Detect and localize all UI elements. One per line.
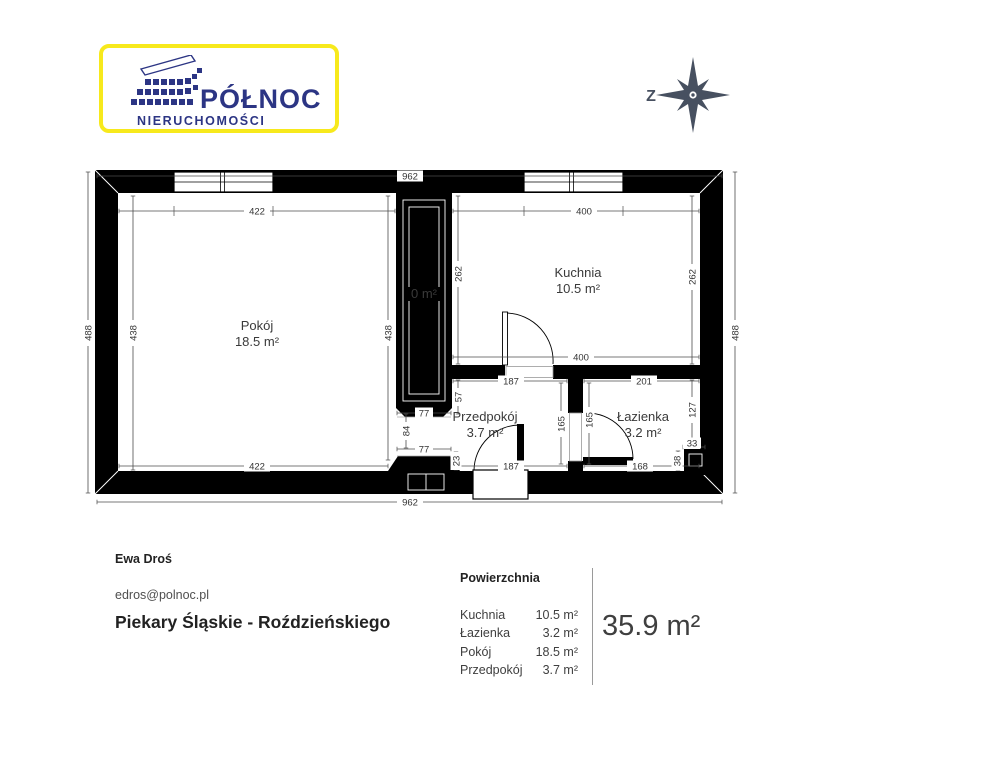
room-przedpokoj-area: 3.7 m² bbox=[467, 425, 505, 440]
dim-kitchen-top: 400 bbox=[576, 207, 592, 218]
dim-corner-top: 33 bbox=[687, 439, 698, 450]
compass-west-label: Z bbox=[646, 88, 656, 105]
dim-bath-right: 127 bbox=[688, 402, 699, 418]
area-table: Kuchnia 10.5 m² Łazienka 3.2 m² Pokój 18… bbox=[460, 606, 578, 679]
dim-room-top: 422 bbox=[249, 207, 265, 218]
dim-outer-top: 962 bbox=[402, 172, 418, 183]
window-right bbox=[524, 172, 623, 192]
table-row: Kuchnia 10.5 m² bbox=[460, 606, 578, 624]
row-label: Pokój bbox=[460, 643, 491, 661]
dim-bath-left: 165 bbox=[585, 412, 596, 428]
table-divider bbox=[592, 568, 593, 685]
row-value: 10.5 m² bbox=[536, 606, 578, 624]
agency-logo: PÓŁNOC NIERUCHOMOŚCI bbox=[99, 44, 339, 133]
dim-pass-bottom: 77 bbox=[419, 445, 430, 456]
row-value: 18.5 m² bbox=[536, 643, 578, 661]
dim-outer-right: 488 bbox=[731, 325, 742, 341]
logo-squares bbox=[131, 68, 202, 105]
row-label: Łazienka bbox=[460, 624, 510, 642]
dim-pass-left: 84 bbox=[402, 426, 413, 437]
shaft-column: 0 m² bbox=[396, 193, 452, 417]
compass-rose: Z bbox=[618, 45, 753, 150]
dim-shaft-below: 57 bbox=[454, 392, 465, 403]
dim-hall-right: 165 bbox=[557, 416, 568, 432]
dim-outer-left: 488 bbox=[84, 325, 95, 341]
property-location: Piekary Śląskie - Roździeńskiego bbox=[115, 612, 390, 633]
compass-hub-dot bbox=[691, 93, 694, 96]
dim-pass-top: 77 bbox=[419, 409, 430, 420]
row-label: Kuchnia bbox=[460, 606, 505, 624]
dim-kitchen-bottom: 400 bbox=[573, 353, 589, 364]
room-kuchnia-area: 10.5 m² bbox=[556, 281, 601, 296]
floor-plan: 0 m² bbox=[75, 158, 747, 514]
dim-room-left: 438 bbox=[129, 325, 140, 341]
dim-corner-left: 38 bbox=[673, 456, 684, 467]
agent-name: Ewa Droś bbox=[115, 552, 172, 566]
row-value: 3.7 m² bbox=[543, 661, 578, 679]
logo-text-polnoc: PÓŁNOC bbox=[200, 86, 322, 113]
kitchen-wall bbox=[452, 365, 700, 379]
logo-text-nieruchomosci: NIERUCHOMOŚCI bbox=[137, 115, 265, 128]
dim-outer-bottom: 962 bbox=[402, 498, 418, 509]
dim-hall-top: 187 bbox=[503, 377, 519, 388]
room-pokoj-area: 18.5 m² bbox=[235, 334, 280, 349]
row-label: Przedpokój bbox=[460, 661, 523, 679]
dim-hall-bottom: 187 bbox=[503, 462, 519, 473]
room-lazienka-area: 3.2 m² bbox=[625, 425, 663, 440]
dim-room-right: 438 bbox=[384, 325, 395, 341]
room-pokoj-name: Pokój bbox=[241, 318, 274, 333]
room-lazienka-name: Łazienka bbox=[617, 409, 670, 424]
dim-bath-bottom: 168 bbox=[632, 462, 648, 473]
dim-stub-right: 23 bbox=[452, 456, 463, 467]
room-kuchnia-name: Kuchnia bbox=[555, 265, 603, 280]
dim-kitchen-right: 262 bbox=[688, 269, 699, 285]
corner-duct bbox=[684, 449, 710, 475]
window-left bbox=[174, 172, 273, 192]
logo-graphic bbox=[131, 55, 203, 113]
dim-bath-top: 201 bbox=[636, 377, 652, 388]
bathroom-wall bbox=[568, 379, 583, 471]
dim-kitchen-left: 262 bbox=[454, 266, 465, 282]
area-table-title: Powierzchnia bbox=[460, 571, 540, 585]
agent-email: edros@polnoc.pl bbox=[115, 588, 209, 602]
table-row: Pokój 18.5 m² bbox=[460, 643, 578, 661]
table-row: Przedpokój 3.7 m² bbox=[460, 661, 578, 679]
shaft-area-label: 0 m² bbox=[411, 286, 438, 301]
total-area: 35.9 m² bbox=[602, 610, 700, 643]
dim-room-bottom: 422 bbox=[249, 462, 265, 473]
room-przedpokoj-name: Przedpokój bbox=[452, 409, 517, 424]
table-row: Łazienka 3.2 m² bbox=[460, 624, 578, 642]
logo-beam bbox=[141, 55, 195, 75]
row-value: 3.2 m² bbox=[543, 624, 578, 642]
